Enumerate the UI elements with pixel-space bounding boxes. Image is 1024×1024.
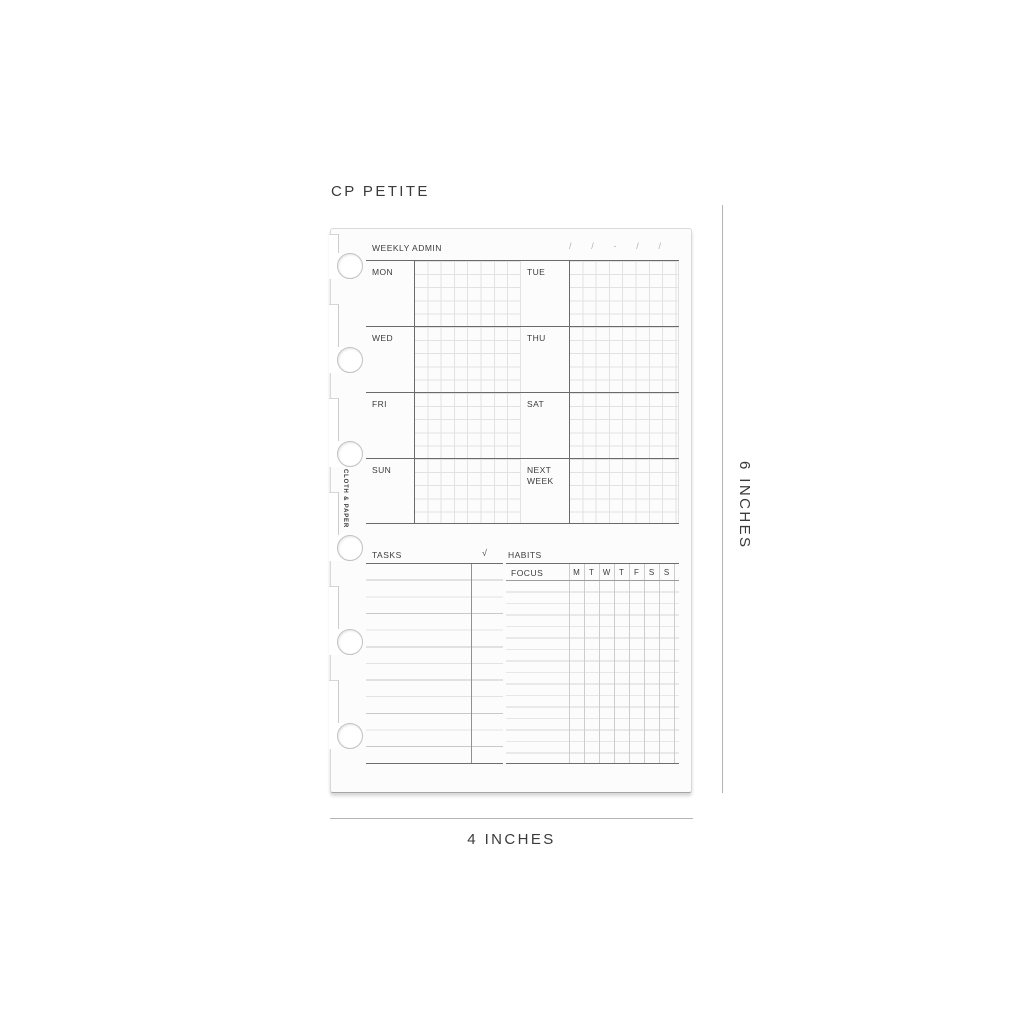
day-label: WED [366, 327, 414, 344]
disc-hole-icon [337, 629, 363, 655]
weekly-row: WED THU [366, 327, 679, 393]
weekly-row: FRI SAT [366, 393, 679, 459]
tasks-header: TASKS [372, 550, 402, 560]
weekly-row: SUN NEXT WEEK [366, 459, 679, 524]
day-cell-thu: THU [521, 327, 569, 392]
day-writing-grid [414, 261, 521, 326]
day-label: MON [366, 261, 414, 278]
day-label: FRI [366, 393, 414, 410]
weekly-divider-line [414, 261, 415, 524]
day-label: THU [521, 327, 569, 344]
habit-day-header: S [659, 564, 674, 581]
disc-notch [329, 234, 367, 298]
planner-page: CLOTH & PAPER WEEKLY ADMIN / / - / / MON… [330, 228, 692, 793]
brand-text: CLOTH & PAPER [342, 469, 348, 533]
habit-day-headers: M T W T F S S [569, 564, 674, 581]
weekly-row: MON TUE [366, 261, 679, 327]
habit-day-header: S [644, 564, 659, 581]
day-label: NEXT WEEK [521, 459, 569, 488]
disc-notch [329, 304, 367, 388]
date-slash: / [658, 241, 661, 251]
day-writing-grid [569, 261, 679, 326]
notch-slot [329, 234, 339, 254]
day-cell-wed: WED [366, 327, 414, 392]
notch-slot [329, 492, 339, 536]
disc-hole-icon [337, 253, 363, 279]
day-cell-tue: TUE [521, 261, 569, 326]
weekly-divider-line [569, 261, 570, 524]
day-writing-grid [569, 327, 679, 392]
product-image-canvas: CP PETITE [0, 0, 1024, 1024]
day-writing-grid [414, 327, 521, 392]
notch-slot [329, 304, 339, 348]
habit-day-header: W [599, 564, 614, 581]
disc-hole-icon [337, 441, 363, 467]
habits-tracker-header: FOCUS M T W T F S S [506, 564, 679, 581]
disc-hole-icon [337, 723, 363, 749]
date-slash: / [591, 241, 594, 251]
day-cell-next-week: NEXT WEEK [521, 459, 569, 523]
disc-notch [329, 398, 367, 482]
habit-day-header: T [584, 564, 599, 581]
habit-day-header: F [629, 564, 644, 581]
checkmark-icon: √ [482, 548, 487, 558]
weekly-admin-header: WEEKLY ADMIN [372, 243, 442, 253]
weekly-grid: MON TUE WED THU FRI SAT SUN NEXT WEEK [366, 260, 679, 524]
day-writing-grid [414, 393, 521, 458]
dimension-line-height [722, 205, 723, 793]
habits-day-columns [569, 564, 675, 763]
disc-notch [329, 680, 367, 764]
tasks-list [366, 563, 503, 764]
disc-hole-icon [337, 347, 363, 373]
date-placeholder: / / - / / [569, 241, 661, 251]
day-writing-grid [569, 459, 679, 523]
notch-slot [329, 680, 339, 724]
habits-header: HABITS [508, 550, 542, 560]
date-dash: - [614, 241, 617, 251]
notch-slot [329, 398, 339, 442]
dimension-label-width: 4 INCHES [330, 831, 693, 848]
day-label: TUE [521, 261, 569, 278]
day-label: SAT [521, 393, 569, 410]
date-slash: / [636, 241, 639, 251]
dimension-line-width [330, 818, 693, 819]
day-label: SUN [366, 459, 414, 476]
product-title: CP PETITE [331, 183, 430, 200]
disc-hole-icon [337, 535, 363, 561]
focus-column-header: FOCUS [511, 568, 543, 578]
habit-day-header: M [569, 564, 584, 581]
day-cell-fri: FRI [366, 393, 414, 458]
day-cell-mon: MON [366, 261, 414, 326]
day-cell-sat: SAT [521, 393, 569, 458]
tasks-check-column-divider [471, 564, 472, 763]
day-cell-sun: SUN [366, 459, 414, 523]
dimension-label-height: 6 INCHES [736, 461, 753, 549]
disc-notch [329, 586, 367, 670]
day-writing-grid [414, 459, 521, 523]
habit-day-header: T [614, 564, 629, 581]
date-slash: / [569, 241, 572, 251]
notch-slot [329, 586, 339, 630]
day-writing-grid [569, 393, 679, 458]
disc-notch [329, 492, 367, 576]
habits-tracker: FOCUS M T W T F S S [506, 563, 679, 764]
